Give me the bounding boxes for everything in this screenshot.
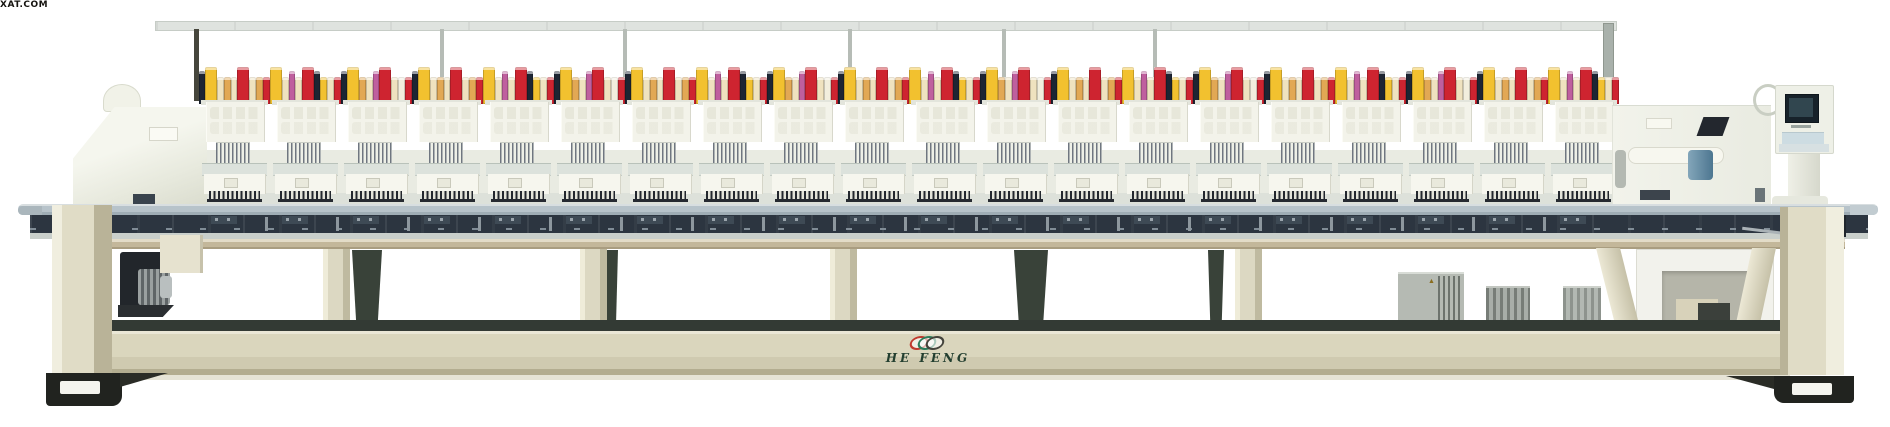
thread-spool-row — [767, 64, 838, 104]
thread-spool — [773, 67, 785, 104]
needle-case-label — [1360, 178, 1374, 188]
thread-spool-row — [554, 64, 625, 104]
thread-spool — [1367, 67, 1379, 104]
thread-take-up-grill — [1068, 142, 1102, 164]
thread-take-up-grill — [287, 142, 321, 164]
tension-knob-row — [707, 122, 758, 134]
thread-spool — [805, 67, 817, 104]
embroidery-head — [1264, 60, 1335, 205]
needle-case-label — [1005, 178, 1019, 188]
thread-spool — [237, 67, 249, 104]
thread-take-up-grill — [1352, 142, 1386, 164]
hoop-clamp — [637, 216, 663, 224]
thread-spool — [1154, 67, 1166, 104]
thread-spool — [515, 67, 527, 104]
foot-notch — [60, 381, 100, 394]
hoop-clamp — [1347, 216, 1373, 224]
tension-knob-row — [1062, 122, 1113, 134]
carriage-post — [1543, 217, 1546, 231]
brand-name: HE FENG — [868, 351, 988, 365]
needle-case-label — [295, 178, 309, 188]
right-cabinet-label — [1646, 118, 1672, 129]
thread-spool-row — [199, 64, 270, 104]
needle-bar-base — [1414, 199, 1469, 202]
thread-spool — [986, 67, 998, 104]
needle-case-label — [437, 178, 451, 188]
tension-knob-row — [1417, 107, 1468, 119]
embroidery-machine-photo: ▲ HE FENG XAT.COM — [0, 0, 1890, 427]
machine-table — [18, 204, 1878, 215]
tension-unit — [419, 102, 478, 142]
embroidery-head — [1051, 60, 1122, 205]
thread-spool-row — [980, 64, 1051, 104]
needle-bar-base — [349, 199, 404, 202]
needle-case-label — [508, 178, 522, 188]
tension-unit — [1555, 102, 1614, 142]
thread-take-up-grill — [642, 142, 676, 164]
base-shadow-slot — [112, 320, 1788, 331]
tension-knob-row — [565, 107, 616, 119]
tension-knob-row — [281, 107, 332, 119]
thread-spool-row — [1264, 64, 1335, 104]
thread-spool — [728, 67, 740, 104]
thread-spool — [1548, 67, 1560, 104]
tension-knob-row — [778, 122, 829, 134]
thread-spool — [270, 67, 282, 104]
needle-case-label — [1502, 178, 1516, 188]
recess-plaque — [1698, 303, 1730, 320]
tension-knob-row — [636, 122, 687, 134]
control-screen-display — [1789, 98, 1813, 117]
foot-notch — [1792, 383, 1832, 395]
thread-take-up-grill — [855, 142, 889, 164]
thread-take-up-grill — [997, 142, 1031, 164]
hoop-clamp — [211, 216, 237, 224]
carriage-post — [762, 217, 765, 231]
tension-unit — [1200, 102, 1259, 142]
end-leg-right — [1780, 207, 1844, 375]
hoop-clamp — [921, 216, 947, 224]
thread-spool-row — [696, 64, 767, 104]
embroidery-head — [199, 60, 270, 205]
thread-spool-row — [1193, 64, 1264, 104]
carriage-post — [265, 217, 268, 231]
hoop-clamp — [566, 216, 592, 224]
tension-unit — [206, 102, 265, 142]
hoop-clamp — [779, 216, 805, 224]
hoop-clamp — [1560, 216, 1586, 224]
tension-unit — [348, 102, 407, 142]
thread-spool — [1580, 67, 1592, 104]
tension-knob-row — [1133, 122, 1184, 134]
carriage-post — [1188, 217, 1191, 231]
thread-spool — [347, 67, 359, 104]
thread-spool-row — [838, 64, 909, 104]
left-end-cabinet — [73, 107, 207, 206]
needle-bar-base — [562, 199, 617, 202]
thread-take-up-grill — [1423, 142, 1457, 164]
carriage-post — [1330, 217, 1333, 231]
tension-unit — [1058, 102, 1117, 142]
table-left-cap — [18, 206, 42, 215]
tension-knob-row — [920, 122, 971, 134]
thread-spool — [1122, 67, 1134, 104]
needle-bar-base — [1130, 199, 1185, 202]
thread-spool — [1483, 67, 1495, 104]
support-brace — [1014, 250, 1048, 328]
tension-knob-row — [707, 107, 758, 119]
needle-bar-base — [988, 199, 1043, 202]
tension-knob-row — [991, 122, 1042, 134]
thread-spool-row — [341, 64, 412, 104]
thread-spool — [1089, 67, 1101, 104]
embroidery-head — [1548, 60, 1619, 205]
needle-case-label — [1289, 178, 1303, 188]
base-beam-shadow — [110, 375, 1790, 380]
embroidery-head — [270, 60, 341, 205]
thread-take-up-grill — [1494, 142, 1528, 164]
thread-take-up-grill — [429, 142, 463, 164]
thread-take-up-grill — [216, 142, 250, 164]
thread-spool-row — [1548, 64, 1619, 104]
tension-unit — [277, 102, 336, 142]
support-brace — [1208, 250, 1224, 328]
needle-case-label — [863, 178, 877, 188]
left-cabinet-label — [149, 127, 178, 141]
needle-case-label — [1573, 178, 1587, 188]
tension-unit — [916, 102, 975, 142]
thread-spool — [1302, 67, 1314, 104]
thread-spool — [1444, 67, 1456, 104]
watermark-text: XAT.COM — [0, 0, 48, 10]
gray-cylinder — [1615, 150, 1626, 188]
embroidery-head — [1193, 60, 1264, 205]
thread-spool — [876, 67, 888, 104]
tension-knob-row — [1275, 107, 1326, 119]
hoop-clamp — [1489, 216, 1515, 224]
motor-mount — [118, 305, 174, 317]
tension-unit — [1413, 102, 1472, 142]
thread-take-up-grill — [1210, 142, 1244, 164]
cabinet-fitting — [1640, 190, 1670, 200]
carriage-post — [1117, 217, 1120, 231]
motor-pulley-cap — [160, 276, 172, 298]
tension-knob-row — [1275, 122, 1326, 134]
embroidery-head — [1477, 60, 1548, 205]
needle-bar-base — [420, 199, 475, 202]
hoop-clamp — [850, 216, 876, 224]
tension-knob-row — [281, 122, 332, 134]
hoop-clamp — [282, 216, 308, 224]
carriage-post — [1259, 217, 1262, 231]
hoop-clamp — [424, 216, 450, 224]
embroidery-head — [838, 60, 909, 205]
tension-knob-row — [778, 107, 829, 119]
carriage-post — [1046, 217, 1049, 231]
thread-spool — [844, 67, 856, 104]
tension-unit — [632, 102, 691, 142]
thread-spool-row — [483, 64, 554, 104]
needle-case-label — [721, 178, 735, 188]
thread-spool — [592, 67, 604, 104]
needle-case-label — [579, 178, 593, 188]
tension-knob-row — [1346, 107, 1397, 119]
tension-knob-row — [1417, 122, 1468, 134]
needle-case-label — [1147, 178, 1161, 188]
tension-knob-row — [1559, 122, 1610, 134]
support-brace — [352, 250, 382, 328]
carriage-post — [833, 217, 836, 231]
tension-knob-row — [352, 122, 403, 134]
carriage-post — [620, 217, 623, 231]
carriage-post — [1401, 217, 1404, 231]
thread-take-up-grill — [500, 142, 534, 164]
thread-spool — [1231, 67, 1243, 104]
end-leg-left — [52, 205, 112, 375]
tension-knob-row — [352, 107, 403, 119]
cabinet-fitting — [1755, 188, 1765, 202]
thread-spool — [696, 67, 708, 104]
carriage-post — [1472, 217, 1475, 231]
tension-unit — [1484, 102, 1543, 142]
needle-bar-base — [846, 199, 901, 202]
thread-spool — [1412, 67, 1424, 104]
hoop-clamp — [992, 216, 1018, 224]
embroidery-head — [1406, 60, 1477, 205]
table-right-cap — [1850, 205, 1878, 215]
embroidery-head — [909, 60, 980, 205]
carriage-post — [975, 217, 978, 231]
tension-knob-row — [636, 107, 687, 119]
thread-spool — [1199, 67, 1211, 104]
thread-spool-row — [1051, 64, 1122, 104]
embroidery-head — [1335, 60, 1406, 205]
needle-bar-base — [1201, 199, 1256, 202]
thread-spool — [631, 67, 643, 104]
tension-knob-row — [494, 122, 545, 134]
embroidery-head — [483, 60, 554, 205]
tension-knob-row — [1062, 107, 1113, 119]
thread-spool — [450, 67, 462, 104]
needle-bar-base — [917, 199, 972, 202]
thread-spool — [663, 67, 675, 104]
thread-spool — [1057, 67, 1069, 104]
thread-spool — [1270, 67, 1282, 104]
needle-case-label — [1218, 178, 1232, 188]
embroidery-head — [767, 60, 838, 205]
hoop-clamp — [495, 216, 521, 224]
thread-spool — [560, 67, 572, 104]
needle-case-label — [224, 178, 238, 188]
tension-unit — [561, 102, 620, 142]
needle-bar-base — [1272, 199, 1327, 202]
thread-spool — [909, 67, 921, 104]
thread-spool — [483, 67, 495, 104]
thread-take-up-grill — [926, 142, 960, 164]
thread-spool-row — [1477, 64, 1548, 104]
tension-knob-row — [1488, 122, 1539, 134]
needle-case-label — [366, 178, 380, 188]
tension-knob-row — [494, 107, 545, 119]
thread-take-up-grill — [1281, 142, 1315, 164]
embroidery-head — [625, 60, 696, 205]
tension-unit — [703, 102, 762, 142]
needle-case-label — [1076, 178, 1090, 188]
carriage-post — [336, 217, 339, 231]
thread-spool — [1335, 67, 1347, 104]
tension-knob-row — [920, 107, 971, 119]
hoop-clamp — [1205, 216, 1231, 224]
tension-knob-row — [849, 107, 900, 119]
left-support-bracket — [160, 235, 203, 273]
hoop-clamp — [1134, 216, 1160, 224]
needle-bar-base — [1343, 199, 1398, 202]
thread-spool — [1018, 67, 1030, 104]
thread-take-up-grill — [571, 142, 605, 164]
tension-unit — [845, 102, 904, 142]
tension-unit — [1129, 102, 1188, 142]
tension-knob-row — [1346, 122, 1397, 134]
brand-logo: HE FENG — [868, 334, 988, 374]
carriage-post — [478, 217, 481, 231]
carriage-post — [691, 217, 694, 231]
tension-knob-row — [423, 107, 474, 119]
tension-knob-row — [849, 122, 900, 134]
hoop-clamp — [708, 216, 734, 224]
carriage-post — [407, 217, 410, 231]
tension-knob-row — [1204, 122, 1255, 134]
blue-motor-cylinder — [1688, 150, 1713, 180]
tension-unit — [774, 102, 833, 142]
thread-spool — [1515, 67, 1527, 104]
thread-spool-row — [1406, 64, 1477, 104]
thread-take-up-grill — [358, 142, 392, 164]
needle-case-label — [934, 178, 948, 188]
needle-case-label — [1431, 178, 1445, 188]
thread-spool-row — [1335, 64, 1406, 104]
thread-spool — [205, 67, 217, 104]
carriage-post — [904, 217, 907, 231]
tension-knob-row — [991, 107, 1042, 119]
panel-button-row[interactable] — [1791, 125, 1811, 128]
needle-bar-base — [207, 199, 262, 202]
hoop-clamp — [1276, 216, 1302, 224]
tension-knob-row — [210, 122, 261, 134]
carriage-post — [549, 217, 552, 231]
embroidery-head — [696, 60, 767, 205]
needle-bar-base — [491, 199, 546, 202]
needle-bar-base — [704, 199, 759, 202]
vent-grille — [1438, 276, 1460, 324]
thread-take-up-grill — [1565, 142, 1599, 164]
needle-bar-base — [1485, 199, 1540, 202]
tension-unit — [490, 102, 549, 142]
panel-lower-trim — [1779, 144, 1829, 152]
thread-spool-row — [1122, 64, 1193, 104]
tension-knob-row — [423, 122, 474, 134]
needle-bar-base — [1059, 199, 1114, 202]
needle-case-label — [792, 178, 806, 188]
thread-take-up-grill — [1139, 142, 1173, 164]
tension-knob-row — [210, 107, 261, 119]
carriage-rail-highlight — [30, 228, 1868, 230]
tension-knob-row — [565, 122, 616, 134]
thread-spool — [941, 67, 953, 104]
tension-knob-row — [1133, 107, 1184, 119]
embroidery-head — [341, 60, 412, 205]
embroidery-head — [554, 60, 625, 205]
thread-spool — [379, 67, 391, 104]
thread-spool — [302, 67, 314, 104]
thread-take-up-grill — [784, 142, 818, 164]
tension-knob-row — [1204, 107, 1255, 119]
embroidery-head — [980, 60, 1051, 205]
needle-bar-base — [633, 199, 688, 202]
hoop-clamp — [353, 216, 379, 224]
hoop-clamp — [1418, 216, 1444, 224]
thread-guide-rail — [155, 21, 1617, 31]
tension-unit — [1342, 102, 1401, 142]
needle-bar-base — [278, 199, 333, 202]
thread-spool-row — [270, 64, 341, 104]
tension-unit — [987, 102, 1046, 142]
tension-knob-row — [1559, 107, 1610, 119]
drive-shaft-stringer — [55, 239, 1845, 249]
tension-unit — [1271, 102, 1330, 142]
embroidery-head — [412, 60, 483, 205]
thread-spool — [418, 67, 430, 104]
warning-icon: ▲ — [1428, 278, 1435, 285]
thread-spool-row — [412, 64, 483, 104]
tension-knob-row — [1488, 107, 1539, 119]
embroidery-head — [1122, 60, 1193, 205]
thread-take-up-grill — [713, 142, 747, 164]
hoop-clamp — [1063, 216, 1089, 224]
thread-spool-row — [909, 64, 980, 104]
needle-case-label — [650, 178, 664, 188]
needle-bar-base — [775, 199, 830, 202]
thread-spool-row — [625, 64, 696, 104]
needle-bar-base — [1556, 199, 1611, 202]
